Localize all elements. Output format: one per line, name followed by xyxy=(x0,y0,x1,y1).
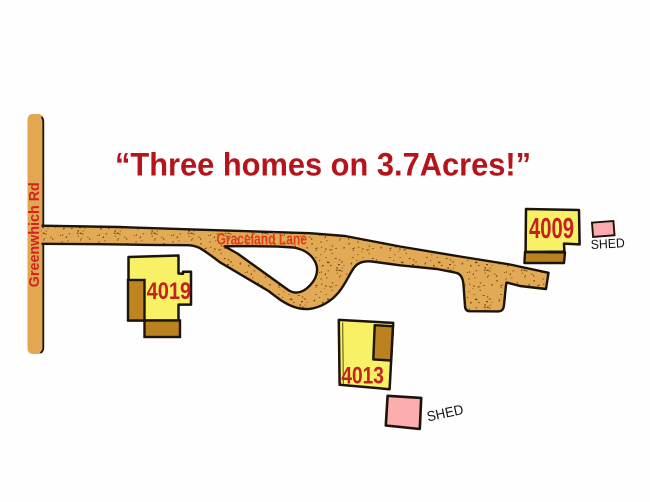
svg-text:4013: 4013 xyxy=(341,362,383,389)
svg-text:4009: 4009 xyxy=(529,213,574,245)
svg-text:SHED: SHED xyxy=(590,235,625,252)
svg-text:4019: 4019 xyxy=(147,278,192,305)
svg-text:“Three homes on 3.7Acres!”: “Three homes on 3.7Acres!” xyxy=(115,147,531,183)
svg-text:Graceland Lane: Graceland Lane xyxy=(217,230,308,249)
svg-text:Greenwhich Rd: Greenwhich Rd xyxy=(26,182,43,287)
